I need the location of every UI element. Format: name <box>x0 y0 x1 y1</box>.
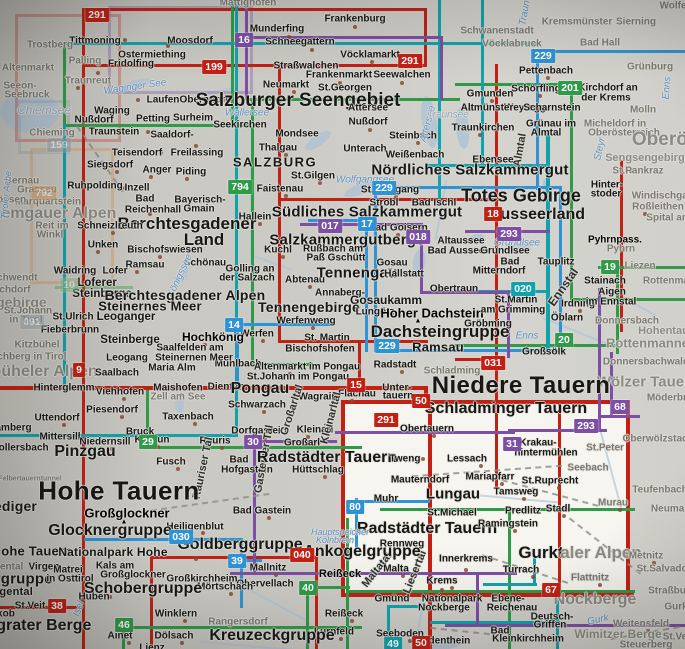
settlement-dot <box>513 529 517 533</box>
map-label-kremsmünster: Kremsmünster <box>542 17 613 28</box>
sheet-chip-229[interactable]: 229 <box>375 339 399 353</box>
sheet-chip-091[interactable]: 091 <box>20 315 44 329</box>
map-label-petting: Petting <box>136 114 170 125</box>
map-label-altmünster: Altmünster <box>461 103 514 114</box>
map-label-piesendorf: Piesendorf <box>86 405 138 416</box>
map-label-steuerberg: Steuerberg <box>620 640 673 649</box>
map-label-mondsee: Mondsee <box>275 129 318 140</box>
settlement-dot <box>531 575 535 579</box>
map-label-nußdorf: Nußdorf <box>349 117 388 128</box>
settlement-dot <box>339 637 343 641</box>
map-label-rottenmann: Rottenmann <box>643 276 685 287</box>
map-label-palling: Palling <box>69 56 102 67</box>
map-label-pongau: Pongau <box>231 380 290 398</box>
map-label-hallstatt: Hallstatt <box>384 269 423 280</box>
map-label-murau: Murau <box>598 498 628 509</box>
map-label-st-salvador: St.Salvador <box>636 564 685 575</box>
sheet-chip-14[interactable]: 14 <box>225 318 243 332</box>
map-label-im-ennstal: im Ennstal <box>586 297 637 308</box>
map-label-großarl: Großarl <box>284 438 320 449</box>
map-label-unken: Unken <box>88 240 119 251</box>
settlement-dot <box>464 568 468 572</box>
map-label-paß-gschütt: Paß Gschütt <box>307 253 366 264</box>
sheet-outline-segment <box>598 415 640 418</box>
map-label-ramingstein: Ramingstein <box>478 519 538 530</box>
map-label-gmain: Gmain <box>183 204 214 215</box>
map-label-unterach: Unterach <box>343 144 386 155</box>
map-label-stadl: Stadl <box>546 504 570 515</box>
map-label-neumarkt: Neumarkt <box>263 80 309 91</box>
settlement-dot <box>416 141 420 145</box>
map-label-piding: Piding <box>176 167 207 178</box>
map-label-st-peter: St.Peter <box>586 443 624 454</box>
map-label-virgental: Virgental <box>0 562 23 573</box>
map-label-enns: Enns <box>516 331 539 342</box>
map-label-nockberge: Nockberge <box>554 591 637 609</box>
settlement-dot <box>194 557 198 561</box>
map-label-gurk: Gurk <box>664 602 685 613</box>
map-label-möderbrugg: Möderbrugg <box>647 393 685 404</box>
map-label-leogang: Leogang <box>106 353 148 364</box>
map-label-gurkt: Gurkt <box>518 543 563 563</box>
map-label-sierning: Sierning <box>616 17 656 28</box>
map-label-schladminger-tauern: Schladminger Tauern <box>425 400 587 418</box>
map-label-winkl: Winkl <box>37 230 64 241</box>
sheet-chip-291[interactable]: 291 <box>398 54 422 68</box>
settlement-dot <box>62 423 66 427</box>
map-index-canvas[interactable]: MattighofenTittmoningMoosdorfOstermiethi… <box>0 0 685 649</box>
map-label-venedigergruppe: Venedigergruppe <box>0 571 53 588</box>
sheet-chip-229[interactable]: 229 <box>372 181 396 195</box>
map-label-reißeck: Reißeck <box>319 568 361 580</box>
map-label-tauern: tauern <box>383 391 414 402</box>
map-label-niedere-tauern: Niedere Tauern <box>432 372 611 400</box>
settlement-dot <box>185 177 189 181</box>
map-label-chieming: Chieming <box>29 128 75 139</box>
settlement-dot <box>229 592 233 596</box>
map-label-turrach: Turrach <box>503 565 540 576</box>
sheet-chip-50[interactable]: 50 <box>412 394 430 408</box>
settlement-dot <box>538 94 542 98</box>
map-label-mittersill: Mittersill <box>39 432 80 443</box>
sheet-chip-9[interactable]: 9 <box>73 363 85 377</box>
map-label-zell-am-see: Zell am See <box>150 392 205 403</box>
sheet-chip-020[interactable]: 020 <box>511 282 535 296</box>
sheet-chip-20[interactable]: 20 <box>555 333 573 347</box>
settlement-dot <box>370 60 374 64</box>
settlement-dot <box>123 38 127 42</box>
map-label-hintermühlen: hintermühlen <box>514 448 577 459</box>
map-label-kreuzeckgruppe: Kreuzeckgruppe <box>209 627 334 645</box>
sheet-chip-293[interactable]: 293 <box>497 227 521 241</box>
map-label-schwendt: Schwendt <box>0 273 38 284</box>
sheet-chip-794[interactable]: 794 <box>228 180 252 194</box>
settlement-dot <box>368 128 372 132</box>
sheet-chip-10[interactable]: 10 <box>60 278 78 292</box>
settlement-dot <box>180 641 184 645</box>
map-label-seekirchen: Seekirchen <box>213 120 266 131</box>
map-label-molln: Molln <box>630 105 656 116</box>
map-label-am-grimming: am Grimming <box>481 305 545 316</box>
settlement-dot <box>310 48 314 52</box>
map-label-leoganger: Leoganger <box>97 311 156 323</box>
sheet-chip-40[interactable]: 40 <box>299 581 317 595</box>
settlement-dot <box>284 194 288 198</box>
settlement-dot <box>350 619 354 623</box>
map-label-bad-aussee: Bad Aussee <box>428 246 485 257</box>
map-label-innerkrems: Innerkrems <box>439 554 493 565</box>
settlement-dot <box>311 326 315 330</box>
map-label-muhr: Muhr <box>374 494 398 505</box>
map-label-traun: Traun <box>517 0 532 26</box>
map-label-lienz: Lienz <box>139 643 165 649</box>
settlement-dot <box>135 270 139 274</box>
map-label-öblarn: Öblarn <box>551 313 583 324</box>
map-label-sengsengebirge: Sengsengebirge <box>605 152 685 164</box>
sheet-chip-159[interactable]: 159 <box>47 138 71 152</box>
map-label-wolfern: Wolfern <box>659 1 685 12</box>
map-label-freilassing: Freilassing <box>171 148 224 159</box>
map-label-mitterndorf: Mitterndorf <box>473 266 526 277</box>
map-label-st-pankraz: St.Pankraz <box>612 166 663 177</box>
sheet-chip-792[interactable]: 792 <box>32 186 56 200</box>
map-label-bramberg: Bramberg <box>0 423 32 434</box>
settlement-dot <box>562 514 566 518</box>
sheet-chip-030[interactable]: 030 <box>169 530 193 544</box>
map-label-spital-am-p: Spital am P. <box>646 213 685 224</box>
map-label-bad-hall: Bad Hall <box>580 38 620 49</box>
map-label-der-salzach: der Salzach <box>219 273 275 284</box>
map-label-seebach: Seebach <box>567 463 608 474</box>
map-label-stainach: Stainach <box>584 276 626 287</box>
settlement-dot <box>96 71 100 75</box>
settlement-dot <box>308 285 312 289</box>
settlement-dot <box>158 255 162 259</box>
sheet-outline-segment <box>483 583 537 586</box>
settlement-dot <box>618 508 622 512</box>
settlement-dot <box>353 25 357 29</box>
settlement-dot <box>96 250 100 254</box>
map-label-defereggental: Defereggental <box>0 586 33 598</box>
sheet-chip-018[interactable]: 018 <box>406 230 430 244</box>
map-label-uttendorf: Uttendorf <box>35 413 80 424</box>
settlement-dot <box>220 446 224 450</box>
map-label-griffen: Griffen <box>534 620 567 631</box>
sheet-chip-040[interactable]: 040 <box>290 548 314 562</box>
sheet-chip-31[interactable]: 31 <box>503 437 521 451</box>
map-label-lessach: Lessach <box>447 454 487 465</box>
settlement-dot <box>522 497 526 501</box>
map-label-windischgarsten: Windischgarsten <box>632 191 685 202</box>
sheet-chip-18[interactable]: 18 <box>484 207 502 221</box>
map-label-grünburg: Grünburg <box>627 62 673 73</box>
map-label-bischofswiesen: Bischofswiesen <box>127 245 203 256</box>
sheet-chip-229[interactable]: 229 <box>531 49 555 63</box>
map-label-traunstein: Traunstein <box>89 127 140 138</box>
settlement-dot <box>421 457 425 461</box>
map-label-radstädter-tauern: Radstädter Tauern <box>257 449 397 467</box>
sheet-outline-segment <box>536 50 685 53</box>
map-label-fridolfing: Fridolfing <box>108 59 154 70</box>
map-label-teufenbach: Teufenbach <box>632 485 685 496</box>
map-label-rottenmanner: Rottenmanner <box>606 336 685 351</box>
map-label-oberösterreich: Oberösterreich <box>632 129 685 151</box>
sheet-chip-16[interactable]: 16 <box>235 33 253 47</box>
settlement-dot <box>261 339 265 343</box>
map-label-ainet: Ainet <box>108 631 133 642</box>
settlement-dot <box>176 467 180 471</box>
ridge-dashed-line <box>430 627 490 635</box>
map-label-st-ruprecht: St.Ruprecht <box>522 476 579 487</box>
map-label-seebruck: Seebruck <box>4 90 49 101</box>
sheet-chip-68[interactable]: 68 <box>611 400 629 414</box>
map-label-mattighofen: Mattighofen <box>220 0 277 9</box>
settlement-dot <box>318 181 322 185</box>
map-label-nußdorf: Nußdorf <box>75 115 114 126</box>
map-label-vöcklabruck: Vöcklabruck <box>482 39 541 50</box>
sheet-chip-201[interactable]: 201 <box>558 81 582 95</box>
sheet-chip-29[interactable]: 29 <box>139 435 157 449</box>
map-label-kirchberg-in-tirol: Kirchberg in Tirol <box>0 352 67 363</box>
sheet-chip-30[interactable]: 30 <box>244 435 262 449</box>
map-label-krems: Krems <box>426 576 457 587</box>
map-label-großvenediger: Großvenediger <box>0 498 37 514</box>
map-label-st-michael: St.Michael <box>427 508 476 519</box>
map-label-scharnstein: Scharnstein <box>523 103 580 114</box>
sheet-chip-39[interactable]: 39 <box>228 554 246 568</box>
map-label-tamsweg: Tamsweg <box>494 487 539 498</box>
map-label-saaldorf: Saaldorf- <box>150 130 193 141</box>
map-label-großsölk: Großsölk <box>522 347 566 358</box>
map-label-bad-gastein: Bad Gastein <box>233 506 291 517</box>
map-label-bischofshofen: Bischofshofen <box>285 344 354 355</box>
map-label-schwarzach: Schwarzach <box>228 400 286 411</box>
map-label-obertauern: Obertauern <box>400 424 454 435</box>
map-label-schörfling: Schörfling <box>511 84 560 95</box>
settlement-dot <box>122 397 126 401</box>
sheet-chip-80[interactable]: 80 <box>346 500 364 514</box>
map-label-kitzbühel: Kitzbühel <box>15 340 60 351</box>
map-label-inzell: Inzell <box>124 183 149 194</box>
settlement-dot <box>432 434 436 438</box>
map-label-mallnitz: Mallnitz <box>250 563 287 574</box>
map-label-altenmarkt: Altenmarkt <box>2 63 54 74</box>
map-label-ramsau: Ramsau <box>126 260 165 271</box>
settlement-dot <box>478 133 482 137</box>
map-label-tweng: Tweng <box>390 454 421 465</box>
map-label-roßleithen: Roßleithen <box>632 202 684 213</box>
map-label-schneizlreuth: Schneizlreuth <box>77 221 143 232</box>
settlement-dot <box>193 422 197 426</box>
map-label-schobergruppe: Schobergruppe <box>84 580 202 598</box>
map-label-moosdorf: Moosdorf <box>167 36 213 47</box>
map-label-st-veit: St.Veit <box>15 601 46 612</box>
map-label-saalbach: Saalbach <box>95 368 139 379</box>
map-label-predlitz: Predlitz <box>505 506 541 517</box>
settlement-dot <box>267 516 271 520</box>
map-label-traunkirchen: Traunkirchen <box>452 123 515 134</box>
map-label-tittmoning: Tittmoning <box>69 36 120 47</box>
sheet-outline-segment <box>245 0 248 100</box>
map-label-goldberggruppe: Goldberggruppe <box>177 536 302 554</box>
settlement-dot <box>401 574 405 578</box>
map-label-winklern: Winklern <box>155 609 197 620</box>
map-label-grundlsee: Grundlsee <box>480 246 529 257</box>
settlement-dot <box>440 588 444 592</box>
map-label-bad: Bad <box>136 194 155 205</box>
map-label-viehhofen: Viehhofen <box>96 387 144 398</box>
map-label-kuchl: Kuchl <box>264 245 292 256</box>
map-label-villgrater-berge: Villgrater Berge <box>0 617 91 635</box>
sheet-chip-199[interactable]: 199 <box>202 60 226 74</box>
map-label-metnitz: Metnitz <box>629 551 663 562</box>
map-label-gmünd: Gmünd <box>375 594 410 605</box>
sheet-outline-segment <box>598 288 601 432</box>
map-label-pinzgau: Pinzgau <box>54 443 115 461</box>
settlement-dot <box>127 641 131 645</box>
map-label-almtal: Almtal <box>531 128 562 139</box>
map-label-nationalpark-hohe: Nationalpark Hohe <box>58 545 167 559</box>
map-label-werfenweng: Werfenweng <box>276 316 335 327</box>
map-label-st-gilgen: St.Gilgen <box>291 171 335 182</box>
map-label-radstädter-tauern: Radstädter Tauern <box>357 520 497 538</box>
sheet-chip-50[interactable]: 50 <box>412 636 430 649</box>
map-label-taxenbach: Taxenbach <box>162 412 214 423</box>
map-label-st-martin: St. Martin <box>304 333 350 344</box>
map-label-enns: Enns <box>661 76 674 100</box>
sheet-chip-293[interactable]: 293 <box>574 419 598 433</box>
map-label-chiemsee: Chiemsee <box>17 103 71 117</box>
map-label-kleinkirchheim: Kleinkirchheim <box>492 634 564 645</box>
map-label-faistenau: Faistenau <box>257 184 304 195</box>
map-label-pyhrn: Pyhrn <box>607 244 635 255</box>
settlement-dot <box>479 464 483 468</box>
sheet-chip-17[interactable]: 17 <box>358 217 376 231</box>
map-label-st-ulrich: St.Ulrich <box>52 312 93 323</box>
settlement-dot <box>557 486 561 490</box>
settlement-dot <box>76 86 80 90</box>
settlement-dot <box>183 619 187 623</box>
map-label-flattnitz: Flattnitz <box>571 573 609 584</box>
settlement-dot <box>115 170 119 174</box>
map-label-maria-alm: Maria Alm <box>148 363 195 374</box>
settlement-dot <box>350 399 354 403</box>
map-label-laufen: Laufen <box>147 95 180 106</box>
map-label-lofer: Lofer <box>103 266 128 277</box>
map-label-attersee: Attersee <box>348 103 388 114</box>
map-label-liezen: Liezen <box>624 261 655 272</box>
map-label-großglockner: Großglockner <box>100 570 166 581</box>
map-label-nockberge: Nockberge <box>418 603 470 614</box>
sheet-chip-15[interactable]: 15 <box>347 378 365 392</box>
map-label-munderfing: Munderfing <box>250 24 304 35</box>
map-label-schneegattern: Schneegattern <box>265 37 334 48</box>
map-label-teisendorf: Teisendorf <box>112 148 162 159</box>
map-label-hallein: Hallein <box>239 212 272 223</box>
map-label-ankogelgruppe: Ankogelgruppe <box>303 543 420 561</box>
settlement-dot <box>281 255 285 259</box>
map-label-hollersbach: Hollersbach <box>0 443 49 454</box>
map-label-wallersee: Wallersee <box>225 108 269 119</box>
map-label-neumarkt: Neumarkt <box>651 504 685 515</box>
map-label-stoder: stoder <box>591 189 622 200</box>
map-label-glocknergruppe: Glocknergruppe <box>48 522 172 540</box>
map-label-trostberg: Trostberg <box>27 40 73 51</box>
map-label-reißeck: Reißeck <box>325 609 363 620</box>
map-label-malta: Malta <box>383 564 409 575</box>
settlement-dot <box>149 175 153 179</box>
sheet-outline-segment <box>440 36 443 100</box>
settlement-dot <box>400 370 404 374</box>
settlement-dot <box>120 415 124 419</box>
map-label-thalgau: Thalgau <box>259 143 297 154</box>
sheet-chip-38[interactable]: 38 <box>48 599 66 613</box>
sheet-chip-46[interactable]: 46 <box>115 618 133 632</box>
map-label-mörtschach: Mörtschach <box>197 582 253 593</box>
settlement-dot <box>598 583 602 587</box>
sheet-chip-49[interactable]: 49 <box>384 637 402 649</box>
settlement-dot <box>262 410 266 414</box>
map-label-anger: Anger <box>143 165 172 176</box>
map-label-salzburg: SALZBURG <box>233 155 317 170</box>
map-label-schwanenstadt: Schwanenstadt <box>460 26 533 37</box>
settlement-dot <box>400 81 404 85</box>
map-label-siegsdorf: Siegsdorf <box>87 160 133 171</box>
map-label-oberwölzstadt: Oberwölzstadt <box>623 434 685 445</box>
sheet-chip-19[interactable]: 19 <box>601 260 619 274</box>
sheet-chip-67[interactable]: 67 <box>542 583 560 597</box>
map-label-werfen: Werfen <box>240 329 274 340</box>
map-label-pettenbach: Pettenbach <box>519 66 573 77</box>
map-label-frankenmarkt: Frankenmarkt <box>306 70 372 81</box>
map-label-seewalchen: Seewalchen <box>373 70 430 81</box>
settlement-dot <box>500 482 504 486</box>
settlement-dot <box>111 231 115 235</box>
map-label-donnersbachwald: Donnersbachwald <box>603 357 685 368</box>
map-label-mauterndorf: Mauterndorf <box>391 475 449 486</box>
map-label-fieberbrunn: Fieberbrunn <box>41 325 99 336</box>
map-label-ausseerland: Ausseerland <box>489 206 585 224</box>
map-label-vöcklamarkt: Vöcklamarkt <box>340 50 399 61</box>
map-label-tennengebirge: Tennengebirge <box>258 299 360 315</box>
map-label-mariapfarr: Mariapfarr <box>466 472 515 483</box>
map-label-nördliches-salzkammergut: Nördliches Salzkammergut <box>371 162 568 179</box>
settlement-dot <box>450 586 454 590</box>
map-label-ruhpolding: Ruhpolding <box>67 181 123 192</box>
map-label-frankenburg: Frankenburg <box>324 14 385 25</box>
map-label-obertraun: Obertraun <box>430 284 478 295</box>
sheet-chip-291[interactable]: 291 <box>374 413 398 427</box>
sheet-chip-017[interactable]: 017 <box>318 219 342 233</box>
map-label-der-krems: der Krems <box>581 93 630 104</box>
settlement-dot <box>323 475 327 479</box>
sheet-outline-segment <box>63 124 66 390</box>
map-label-waidring: Waidring <box>54 266 96 277</box>
settlement-dot <box>546 76 550 80</box>
sheet-chip-031[interactable]: 031 <box>481 356 505 370</box>
map-label-straßburg: Straßburg <box>648 586 685 597</box>
map-label-ramsau: Ramsau <box>412 340 464 355</box>
map-label-rangersdorf: Rangersdorf <box>208 617 267 628</box>
settlement-dot <box>136 98 140 102</box>
map-label-hohe-tauern: Hohe Tauern <box>38 476 199 507</box>
map-label-surheim: Surheim <box>173 113 213 124</box>
map-label-weißenbach: Weißenbach <box>386 150 445 161</box>
settlement-dot <box>274 573 278 577</box>
map-label-fusch: Fusch <box>156 457 185 468</box>
map-label-dölsach: Dölsach <box>155 631 194 642</box>
sheet-chip-291[interactable]: 291 <box>85 8 109 22</box>
